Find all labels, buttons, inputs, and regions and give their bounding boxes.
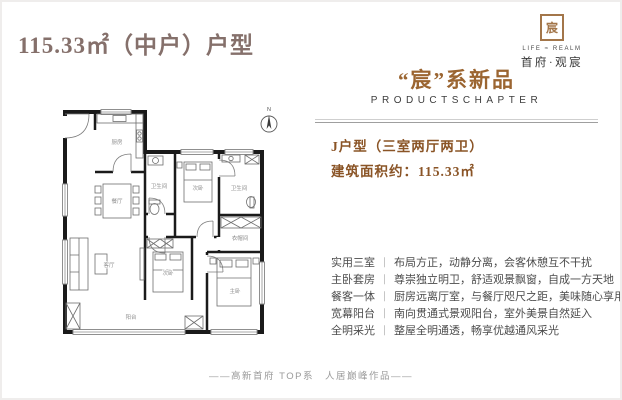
feature-label: 全明采光: [331, 323, 375, 340]
room-label-kitchen: 厨房: [111, 138, 123, 146]
series-subtitle: PRODUCTSCHAPTER: [315, 95, 598, 106]
feature-text: 厨房远离厅室，与餐厅咫尺之距，美味随心享用: [394, 289, 622, 306]
feature-item: 实用三室｜布局方正，动静分离，会客休憩互不干扰: [331, 255, 622, 272]
room-label-closet: 衣帽间: [232, 234, 249, 242]
realm-seal-icon: 宸: [540, 14, 564, 41]
room-label-bedroom2: 次卧: [192, 184, 204, 192]
room-label-bath1: 卫生间: [151, 182, 168, 190]
footer-tagline: ——高新首府 TOP系 人居巅峰作品——: [2, 368, 620, 382]
feature-item: 餐客一体｜厨房远离厅室，与餐厅咫尺之距，美味随心享用: [331, 289, 622, 306]
floor-plan-drawing: 厨房 餐厅 卫生间 次卧 卫生间 衣帽间 客厅 次卧 主卧 阳台 N: [57, 100, 289, 362]
compass-north-label: N: [267, 107, 271, 113]
feature-text: 整屋全明通透，畅享优越通风采光: [394, 323, 559, 340]
logo-name-en: LIFE ≈ REALM: [500, 46, 604, 52]
feature-separator: ｜: [379, 273, 390, 288]
room-label-bedroom3: 次卧: [162, 269, 174, 277]
room-label-bath2: 卫生间: [231, 184, 248, 192]
logo-glyph: 宸: [546, 19, 558, 36]
feature-separator: ｜: [379, 256, 390, 271]
room-label-dining: 餐厅: [111, 197, 123, 205]
feature-label: 主卧套房: [331, 272, 375, 289]
series-title: “宸”系新品: [315, 64, 598, 94]
brand-logo: 宸 LIFE ≈ REALM 首府·观宸: [500, 14, 604, 70]
room-label-master: 主卧: [229, 287, 241, 295]
brochure-page: 115.33㎡（中户）户型 宸 LIFE ≈ REALM 首府·观宸 “宸”系新…: [0, 0, 622, 400]
feature-item: 主卧套房｜尊崇独立明卫，舒适观景飘窗，自成一方天地: [331, 272, 622, 289]
double-rule-divider: [315, 119, 598, 123]
room-label-balcony: 阳台: [125, 313, 137, 321]
feature-text: 尊崇独立明卫，舒适观景飘窗，自成一方天地: [394, 272, 614, 289]
unit-type: J户型（三室两厅两卫）: [331, 135, 484, 155]
feature-separator: ｜: [379, 290, 390, 305]
feature-label: 实用三室: [331, 255, 375, 272]
feature-label: 宽幕阳台: [331, 306, 375, 323]
feature-separator: ｜: [379, 324, 390, 339]
feature-item: 全明采光｜整屋全明通透，畅享优越通风采光: [331, 323, 622, 340]
feature-list: 实用三室｜布局方正，动静分离，会客休憩互不干扰 主卧套房｜尊崇独立明卫，舒适观景…: [331, 255, 622, 340]
feature-item: 宽幕阳台｜南向贯通式景观阳台，室外美景自然延入: [331, 306, 622, 323]
room-label-living: 客厅: [103, 261, 115, 269]
feature-text: 南向贯通式景观阳台，室外美景自然延入: [394, 306, 592, 323]
compass-icon: N: [261, 107, 277, 132]
page-title: 115.33㎡（中户）户型: [18, 26, 254, 60]
feature-text: 布局方正，动静分离，会客休憩互不干扰: [394, 255, 592, 272]
feature-label: 餐客一体: [331, 289, 375, 306]
feature-separator: ｜: [379, 307, 390, 322]
info-panel: “宸”系新品 PRODUCTSCHAPTER J户型（三室两厅两卫） 建筑面积约…: [315, 64, 598, 376]
area-label: 建筑面积约：115.33㎡: [331, 160, 475, 180]
